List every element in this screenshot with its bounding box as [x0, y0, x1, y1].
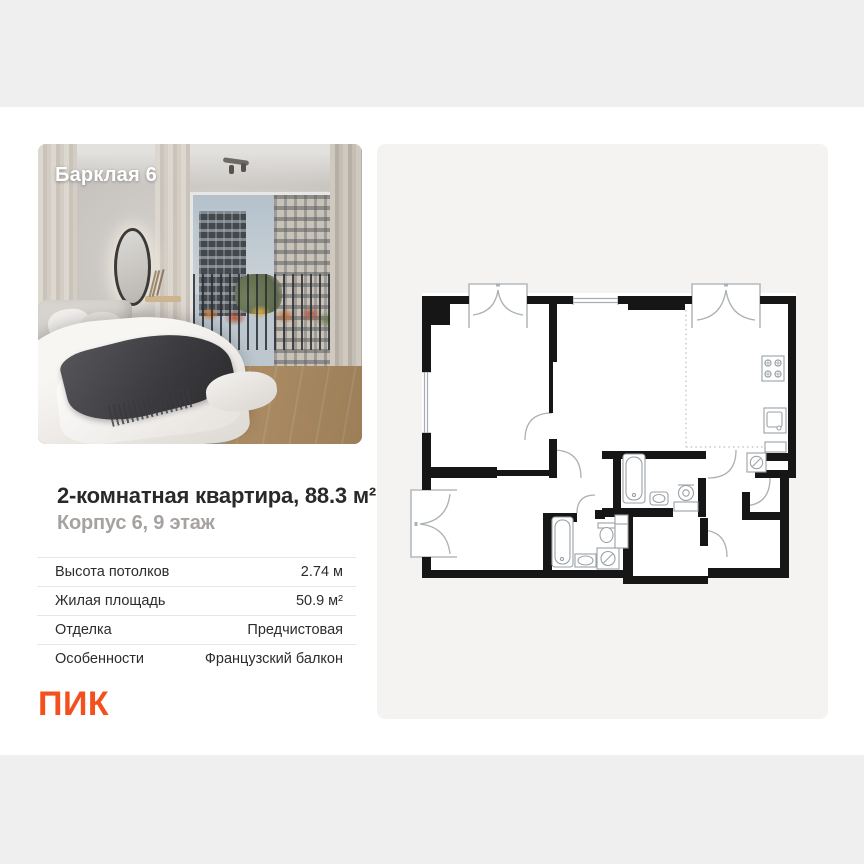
table-row: Жилая площадь 50.9 м²: [37, 586, 356, 615]
track-light-bulb: [229, 165, 234, 174]
spec-label: Особенности: [37, 651, 144, 667]
floor-plan-panel: [377, 144, 828, 719]
toilet-icon: [650, 492, 668, 505]
spec-value: 50.9 м²: [296, 593, 356, 609]
table-row: Особенности Французский балкон: [37, 644, 356, 673]
round-mirror: [114, 228, 151, 306]
tall-cabinet: [615, 515, 628, 548]
console-table: [145, 296, 181, 302]
bathroom-sink-icon: [575, 554, 596, 567]
track-light-bulb: [241, 163, 246, 172]
kitchen-sink-icon: [764, 408, 786, 433]
spec-label: Жилая площадь: [37, 593, 165, 609]
bathtub-icon: [623, 454, 645, 503]
listing-subtitle: Корпус 6, 9 этаж: [57, 512, 215, 535]
bathtub-icon: [552, 517, 573, 567]
floor-plan: [377, 144, 828, 719]
listing-title: 2-комнатная квартира, 88.3 м²: [57, 483, 376, 509]
spec-value: Французский балкон: [205, 651, 356, 667]
project-name-label: Барклая 6: [55, 164, 157, 187]
spec-table: Высота потолков 2.74 м Жилая площадь 50.…: [37, 557, 356, 673]
table-row: Отделка Предчистовая: [37, 615, 356, 644]
washer-icon: [597, 548, 619, 569]
listing-card: Барклая 6: [0, 107, 864, 755]
spec-label: Отделка: [37, 622, 112, 638]
washer-icon: [747, 453, 766, 472]
pik-logo: ПИК: [38, 685, 109, 724]
table-row: Высота потолков 2.74 м: [37, 557, 356, 586]
spec-value: 2.74 м: [301, 564, 356, 580]
wardrobe-fixtures: [747, 453, 766, 472]
spec-value: Предчистовая: [247, 622, 356, 638]
apartment-photo: Барклая 6: [38, 144, 362, 444]
shelf-box: [765, 442, 786, 452]
spec-label: Высота потолков: [37, 564, 169, 580]
stove-icon: [762, 356, 784, 381]
